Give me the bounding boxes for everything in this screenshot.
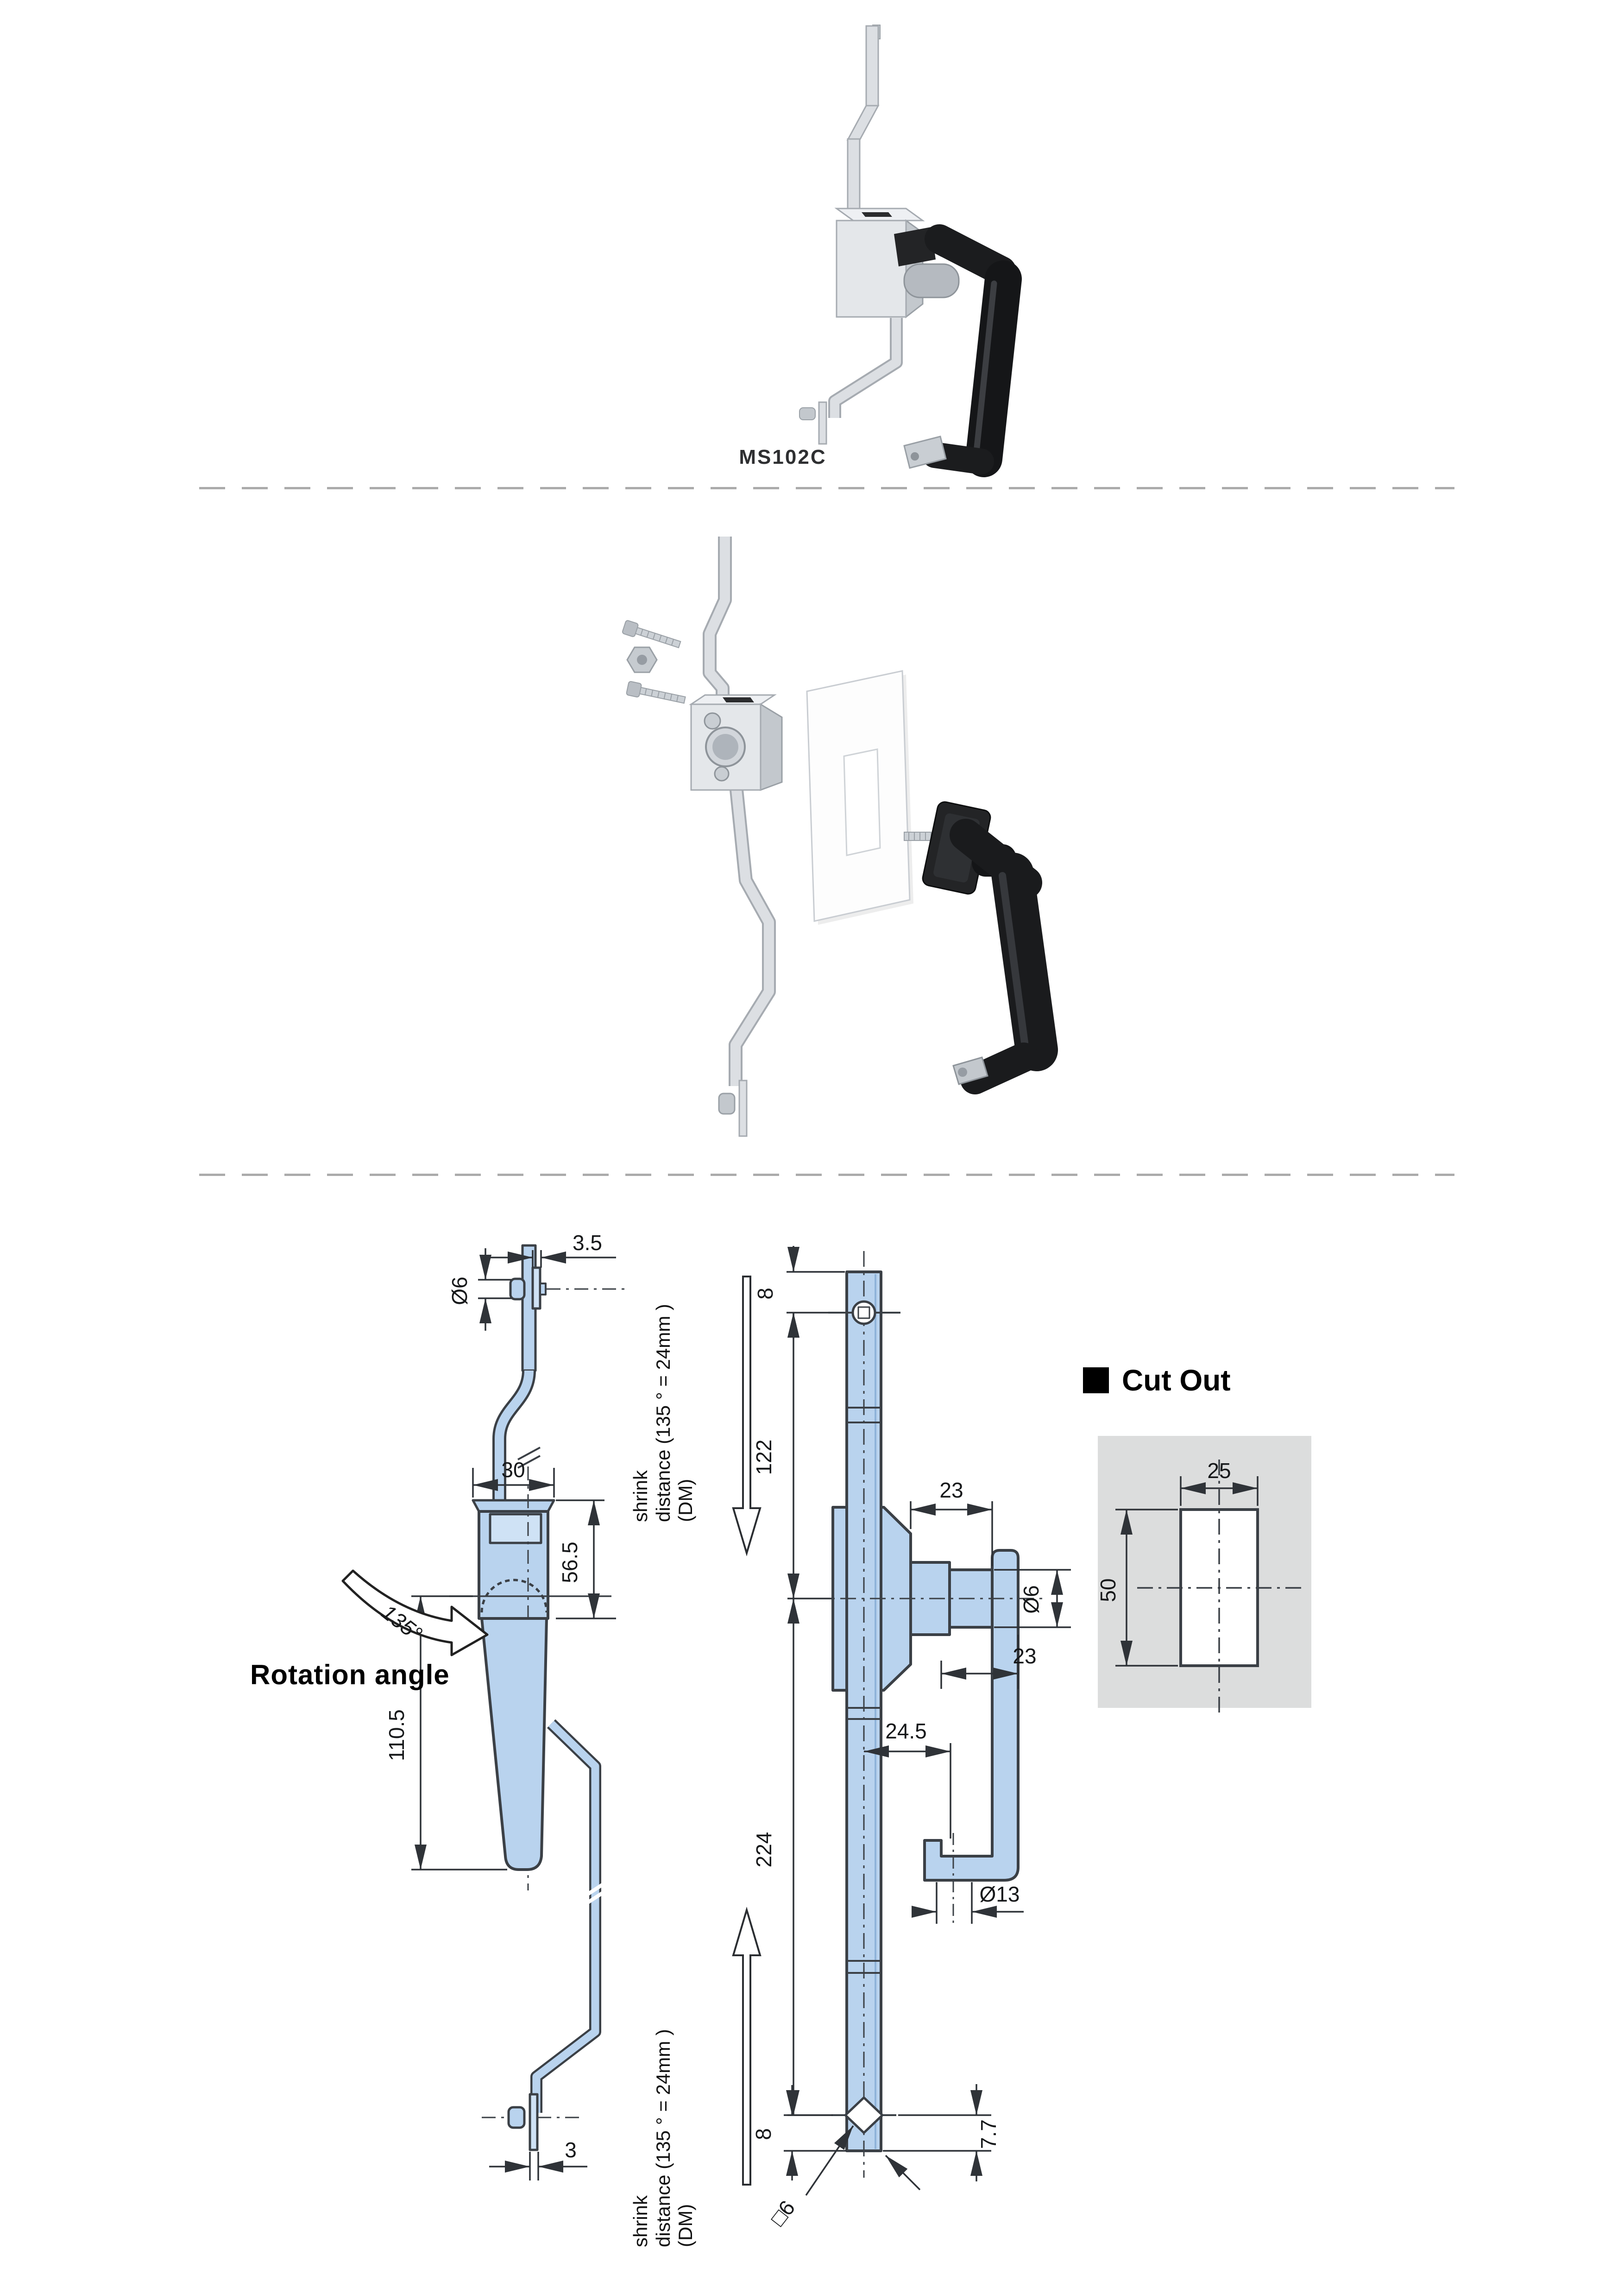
exploded-handle: [904, 801, 1037, 1084]
block-hole-icon: [705, 713, 720, 729]
fastener-screw: [622, 620, 682, 651]
dim-upper-rod: 122: [752, 1440, 776, 1475]
side-head-knob: [510, 1279, 524, 1299]
dim-cutout-height: 50: [1096, 1578, 1120, 1602]
front-view-dimensions: [784, 1246, 1071, 2195]
shrink-distance-label-bottom: shrink distance (135 ° = 24mm ) (DM): [629, 1960, 698, 2247]
dim-foot-diameter: Ø13: [980, 1882, 1020, 1906]
product-photo: [0, 0, 1624, 491]
side-view: [449, 1245, 630, 2150]
rotation-arrow: 135°: [343, 1571, 487, 1655]
rod-top-segment: [866, 26, 878, 106]
side-head-nub: [540, 1283, 546, 1295]
gasket-plate: [807, 671, 913, 925]
divider: [199, 1174, 1454, 1176]
shrink-line3: (DM): [674, 1235, 697, 1522]
dim-body-width: 30: [501, 1458, 525, 1482]
cutout-panel: 25 50: [1096, 1436, 1311, 1714]
cutout-title-text: Cut Out: [1122, 1363, 1231, 1397]
rod-bottom-stud: [719, 1093, 735, 1114]
dim-bottom-tip: 7.7: [976, 2119, 1001, 2149]
shrink-line1: shrink: [629, 1960, 652, 2247]
shrink-arrows: [733, 1277, 760, 2185]
dim-rod-thickness: 3: [565, 2138, 577, 2162]
dim-arm-bottom: 23: [1013, 1644, 1036, 1668]
fastener-nut: [627, 647, 657, 672]
rod-bend: [848, 106, 878, 140]
rod-bottom-plate: [819, 402, 826, 444]
latch-screw-icon: [911, 452, 919, 461]
product-handle: [894, 227, 1003, 468]
dim-cutout-width: 25: [1207, 1459, 1231, 1483]
catalog-page: { "product": { "code": "MS102C" }, "labe…: [0, 0, 1624, 2294]
side-head-plate: [533, 1268, 540, 1308]
dim-handle-length: 110.5: [384, 1709, 409, 1761]
shrink-distance-label-top: shrink distance (135 ° = 24mm ) (DM): [629, 1235, 698, 1522]
side-bottom-plate: [530, 2094, 537, 2150]
dim-shaft-diameter: Ø6: [1019, 1585, 1043, 1613]
dim-lower-rod: 224: [752, 1832, 776, 1868]
side-handle: [482, 1618, 547, 1870]
dim-arm-top: 23: [939, 1478, 963, 1502]
handle-stud: [904, 832, 931, 841]
shrink-line2: distance (135 ° = 24mm ): [652, 1235, 675, 1522]
rod-bottom-stud: [799, 408, 815, 420]
rotation-arrow-shape: [343, 1571, 487, 1655]
dim-head-diameter: Ø6: [447, 1277, 472, 1305]
dim-hook-offset: 24.5: [885, 1719, 927, 1743]
block-top-slot: [862, 212, 892, 217]
exploded-view: [0, 510, 1624, 1172]
black-square-icon: [1083, 1367, 1109, 1393]
product-code: MS102C: [695, 446, 871, 469]
engineering-drawing: 3.5 Ø6 30 56.5 110.5 3 135°: [0, 1205, 1624, 2294]
shrink-line2: distance (135 ° = 24mm ): [652, 1960, 675, 2247]
rotation-angle-label: Rotation angle: [250, 1659, 450, 1691]
handle-pivot: [904, 264, 959, 297]
product-rod-upper: [848, 25, 880, 216]
block-boss-core: [712, 734, 738, 760]
shrink-arrow-down-icon: [733, 1277, 760, 1553]
side-body-window: [490, 1514, 541, 1543]
front-view: [811, 1251, 1042, 2178]
block-top-slot: [723, 697, 754, 702]
shrink-line3: (DM): [674, 1960, 697, 2247]
block-side-face: [761, 704, 782, 790]
rod-bottom-plate: [739, 1081, 747, 1136]
fastener-screw: [626, 681, 686, 707]
exploded-rod: [710, 537, 769, 1136]
exploded-lock-block: [691, 695, 782, 790]
side-bottom-knob: [509, 2107, 524, 2128]
dim-plate-thickness: 3.5: [573, 1231, 602, 1255]
block-hole-icon: [715, 767, 729, 781]
cutout-title: Cut Out: [1083, 1363, 1231, 1397]
front-top-hole: [853, 1302, 875, 1324]
side-body-cap: [473, 1500, 554, 1511]
plate-cutout-hole: [844, 749, 880, 855]
shrink-line1: shrink: [629, 1235, 652, 1522]
dim-square-hole: □6: [765, 2196, 799, 2230]
dim-bottom-hole-offset: 8: [751, 2128, 775, 2140]
dim-top-hole-offset: 8: [753, 1288, 777, 1300]
shrink-arrow-up-icon: [733, 1910, 760, 2185]
divider: [199, 487, 1454, 489]
product-rod-lower: [799, 318, 896, 444]
latch-screw-icon: [958, 1068, 967, 1077]
dim-body-height: 56.5: [558, 1542, 582, 1583]
side-lower-rod: [536, 1724, 595, 2113]
rod-mid-segment: [848, 139, 860, 216]
